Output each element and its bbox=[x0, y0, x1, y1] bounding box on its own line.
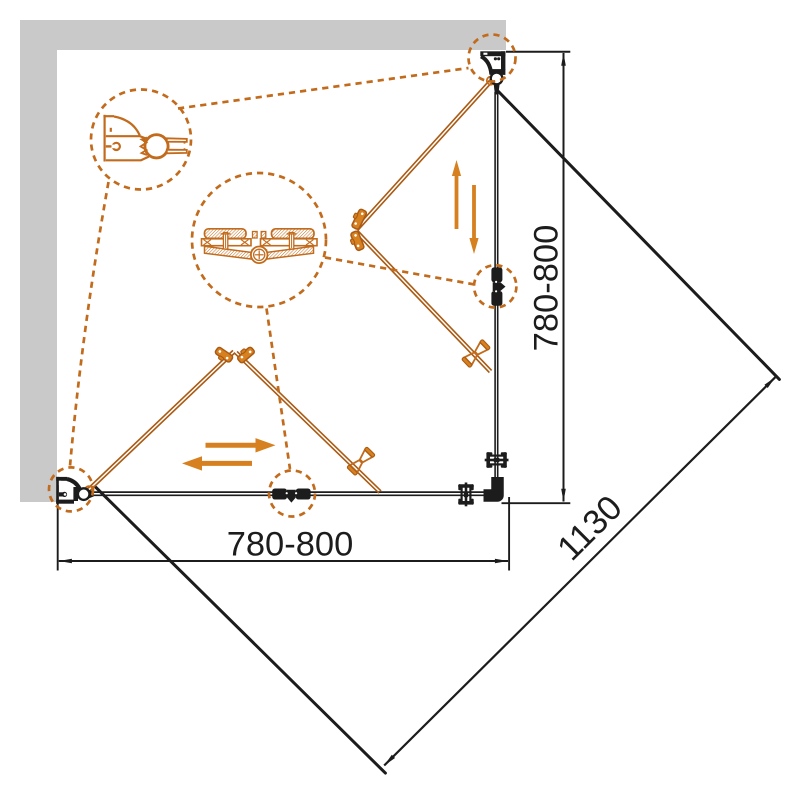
svg-text:780-800: 780-800 bbox=[227, 526, 354, 564]
svg-text:780-800: 780-800 bbox=[528, 225, 566, 352]
